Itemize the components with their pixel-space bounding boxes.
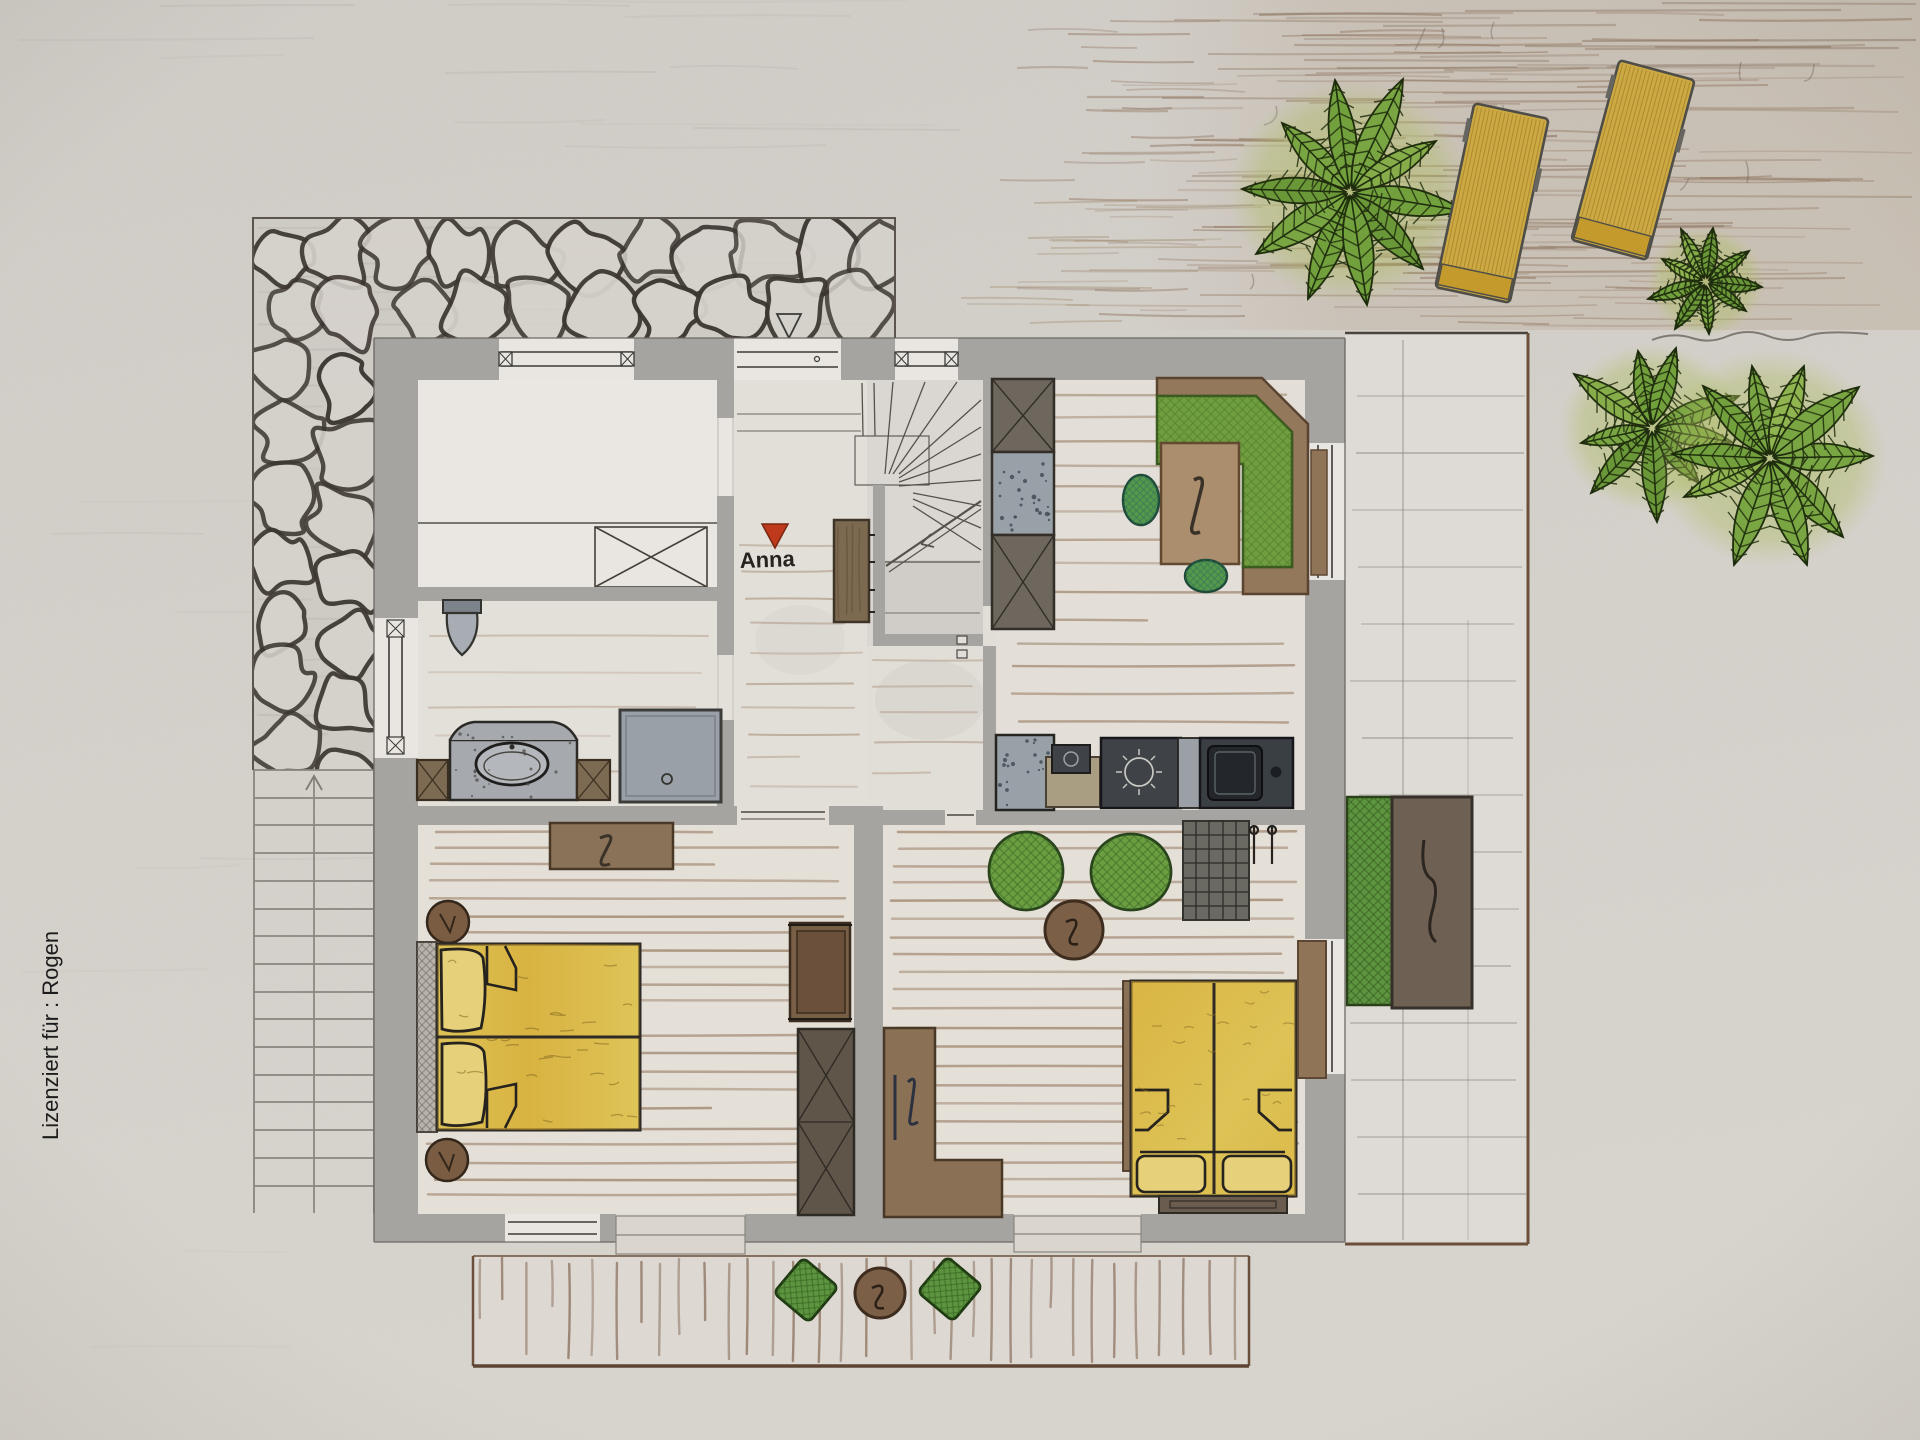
svg-text:Lizenziert für : Rogen: Lizenziert für : Rogen bbox=[38, 931, 63, 1140]
svg-text:Anna: Anna bbox=[739, 546, 796, 573]
